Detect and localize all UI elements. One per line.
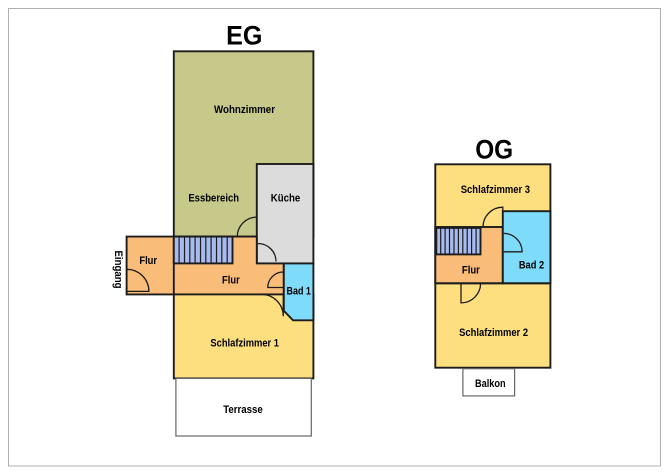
svg-text:Eingang: Eingang xyxy=(112,251,124,289)
svg-text:Balkon: Balkon xyxy=(475,378,506,390)
svg-text:Terrasse: Terrasse xyxy=(223,404,263,416)
svg-text:Wohnzimmer: Wohnzimmer xyxy=(214,104,276,116)
svg-text:Schlafzimmer 1: Schlafzimmer 1 xyxy=(210,338,279,350)
svg-text:Schlafzimmer 3: Schlafzimmer 3 xyxy=(461,184,530,196)
svg-text:Flur: Flur xyxy=(462,265,481,277)
svg-text:OG: OG xyxy=(475,134,513,164)
svg-text:Küche: Küche xyxy=(271,193,301,205)
svg-text:Essbereich: Essbereich xyxy=(188,193,239,205)
svg-text:Flur: Flur xyxy=(139,255,157,267)
svg-text:EG: EG xyxy=(226,21,262,51)
svg-text:Bad 2: Bad 2 xyxy=(519,259,544,271)
svg-text:Schlafzimmer 2: Schlafzimmer 2 xyxy=(459,327,528,339)
svg-text:Flur: Flur xyxy=(222,275,240,287)
svg-text:Bad 1: Bad 1 xyxy=(287,286,311,298)
